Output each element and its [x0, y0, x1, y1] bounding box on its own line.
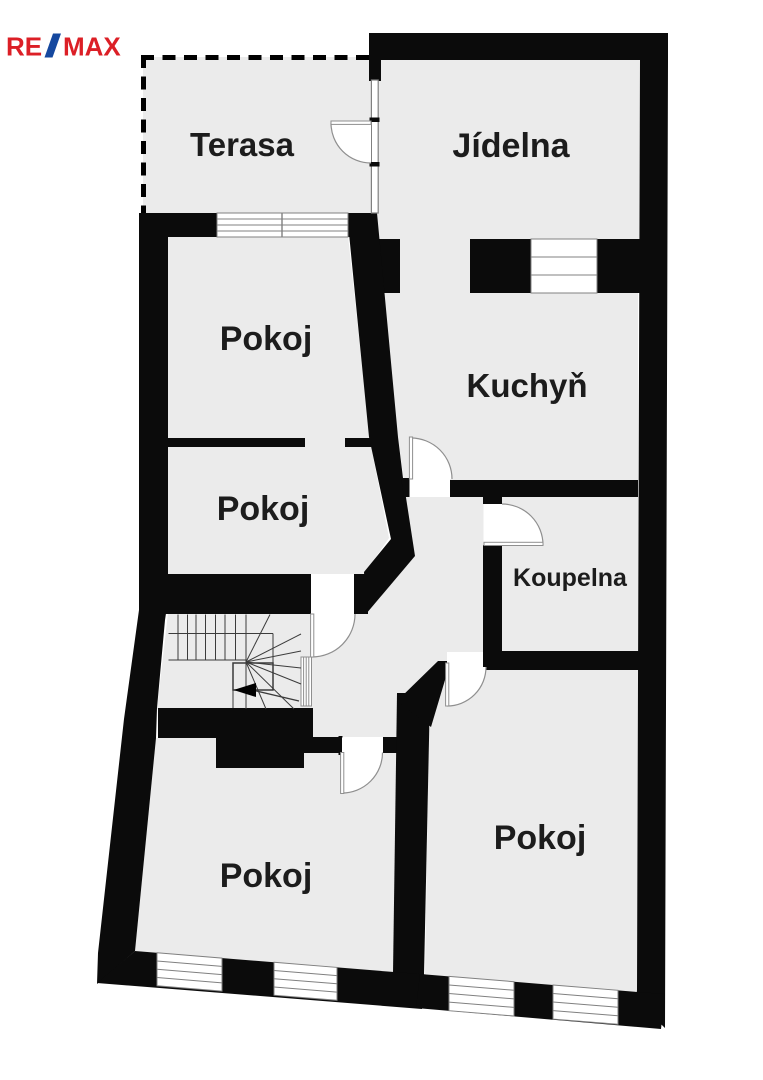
- svg-text:Pokoj: Pokoj: [220, 857, 313, 895]
- svg-text:Pokoj: Pokoj: [217, 490, 310, 528]
- svg-text:Kuchyň: Kuchyň: [466, 367, 587, 404]
- svg-text:Koupelna: Koupelna: [513, 564, 628, 592]
- svg-text:Pokoj: Pokoj: [494, 819, 587, 857]
- svg-text:Pokoj: Pokoj: [220, 320, 313, 358]
- svg-text:Terasa: Terasa: [190, 126, 295, 163]
- svg-text:MAX: MAX: [63, 32, 121, 62]
- svg-text:RE: RE: [6, 32, 42, 62]
- svg-text:Jídelna: Jídelna: [452, 127, 570, 165]
